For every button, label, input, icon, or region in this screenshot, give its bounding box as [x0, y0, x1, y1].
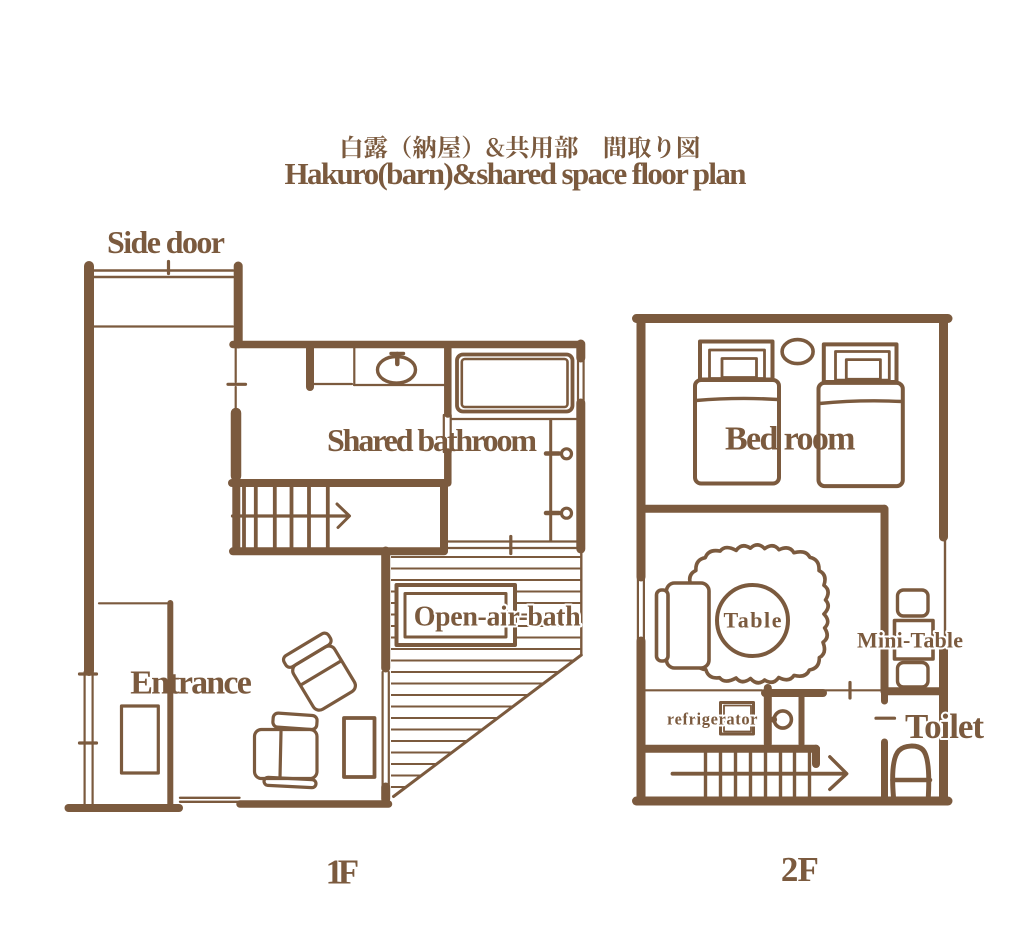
svg-text:refrigerator: refrigerator [667, 710, 758, 729]
svg-text:Bed room: Bed room [725, 421, 856, 458]
svg-text:2F: 2F [781, 850, 819, 889]
svg-text:Open-air-bath: Open-air-bath [414, 602, 581, 633]
svg-text:Toilet: Toilet [905, 707, 984, 746]
svg-text:Hakuro(barn)&shared space floo: Hakuro(barn)&shared space floor plan [285, 156, 747, 191]
svg-text:Mini-Table: Mini-Table [857, 628, 963, 653]
svg-text:Side door: Side door [107, 224, 225, 260]
svg-text:Shared bathroom: Shared bathroom [327, 422, 537, 458]
svg-text:Table: Table [724, 608, 782, 633]
svg-text:Entrance: Entrance [130, 664, 252, 701]
svg-text:1F: 1F [326, 853, 360, 892]
